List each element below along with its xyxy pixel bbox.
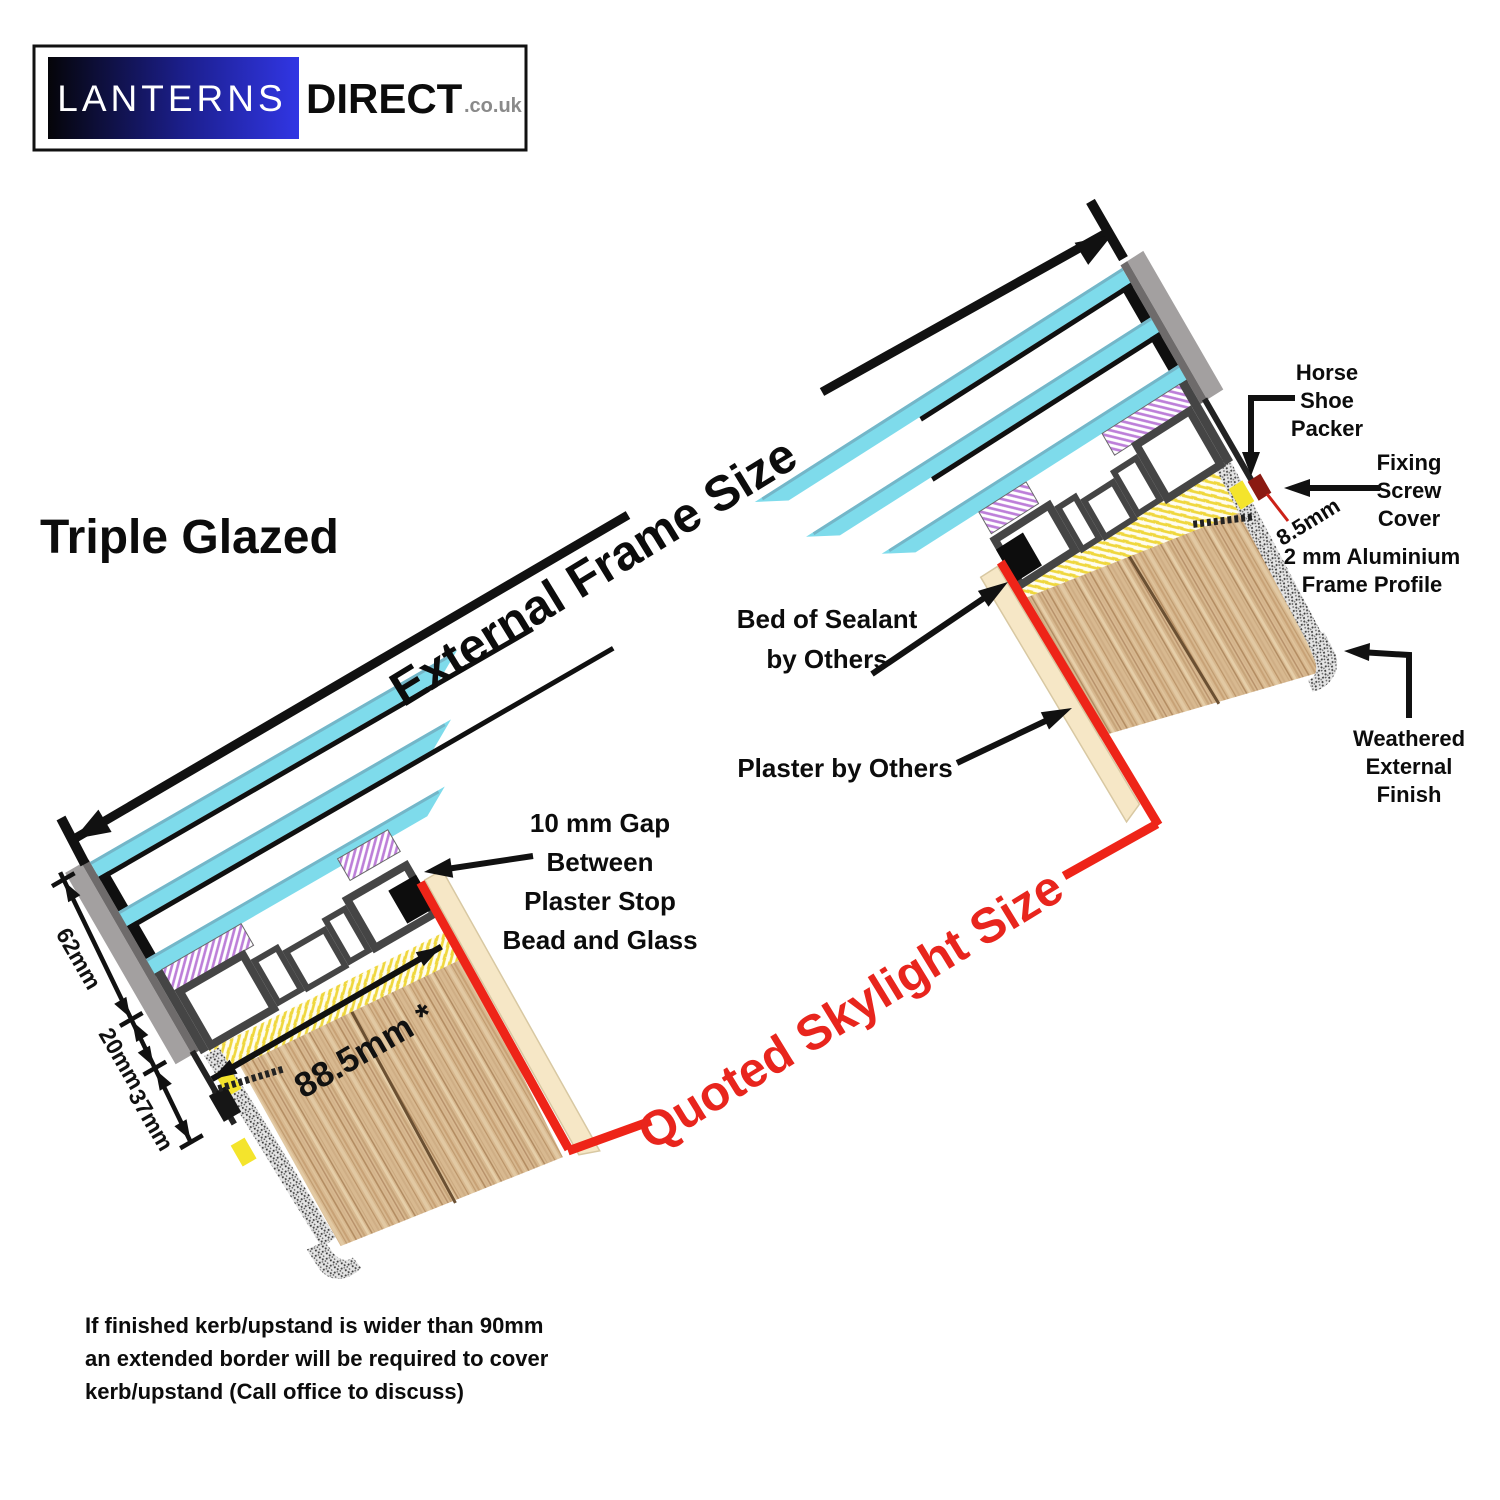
svg-text:Frame Profile: Frame Profile [1302, 572, 1443, 597]
svg-text:External: External [1366, 754, 1453, 779]
svg-text:Packer: Packer [1291, 416, 1364, 441]
svg-text:an extended border will be req: an extended border will be required to c… [85, 1346, 549, 1371]
svg-text:Bed of Sealant: Bed of Sealant [737, 604, 918, 634]
svg-text:Screw: Screw [1377, 478, 1443, 503]
svg-text:If finished kerb/upstand is wi: If finished kerb/upstand is wider than 9… [85, 1313, 543, 1338]
svg-text:Fixing: Fixing [1377, 450, 1442, 475]
svg-text:Cover: Cover [1378, 506, 1441, 531]
svg-text:Between: Between [547, 847, 654, 877]
svg-text:Plaster by Others: Plaster by Others [737, 753, 952, 783]
svg-text:Bead and Glass: Bead and Glass [502, 925, 697, 955]
svg-text:.co.uk: .co.uk [464, 95, 523, 117]
svg-text:DIRECT: DIRECT [306, 75, 463, 122]
svg-text:10 mm Gap: 10 mm Gap [530, 808, 670, 838]
svg-text:kerb/upstand (Call office to d: kerb/upstand (Call office to discuss) [85, 1379, 464, 1404]
svg-text:Finish: Finish [1377, 782, 1442, 807]
svg-text:Shoe: Shoe [1300, 388, 1354, 413]
svg-text:by Others: by Others [766, 644, 887, 674]
svg-text:Horse: Horse [1296, 360, 1358, 385]
svg-text:2 mm Aluminium: 2 mm Aluminium [1284, 544, 1460, 569]
svg-text:Weathered: Weathered [1353, 726, 1465, 751]
svg-text:Plaster Stop: Plaster Stop [524, 886, 676, 916]
svg-text:Triple Glazed: Triple Glazed [40, 511, 339, 564]
svg-text:LANTERNS: LANTERNS [57, 78, 286, 119]
